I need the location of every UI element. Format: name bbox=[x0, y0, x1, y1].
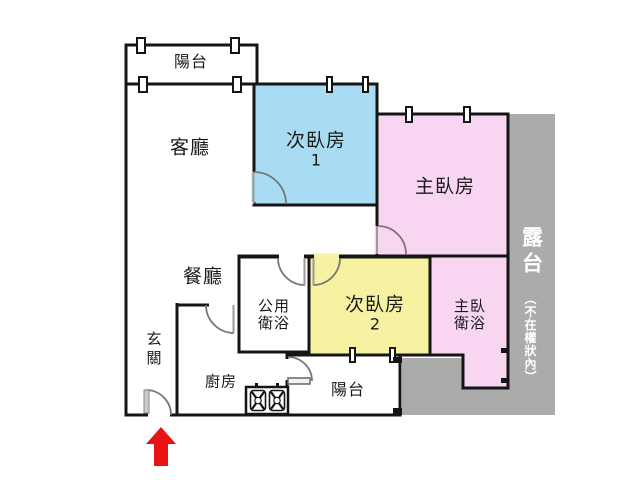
label-bedroom-2-1-number: 1 bbox=[286, 152, 346, 170]
label-bedroom-2-2-number: 2 bbox=[345, 316, 405, 334]
label-balcony-top: 陽台 bbox=[174, 53, 208, 71]
label-master-bedroom: 主臥房 bbox=[415, 176, 475, 197]
label-bedroom-2-1-name: 次臥房 bbox=[286, 130, 346, 151]
door-gap-entry bbox=[148, 412, 170, 418]
label-balcony-bottom: 陽台 bbox=[331, 381, 365, 399]
label-shared-bathroom: 公用 衛浴 bbox=[258, 298, 290, 332]
label-bedroom-2-2-name: 次臥房 bbox=[345, 294, 405, 315]
label-shared-bathroom-line1: 公用 bbox=[258, 298, 290, 315]
stove-icon bbox=[246, 383, 288, 414]
door-gap-bedroom-2-2 bbox=[314, 254, 339, 259]
label-master-bathroom-line2: 衛浴 bbox=[454, 315, 486, 332]
label-entryway: 玄關 bbox=[146, 331, 161, 369]
label-master-bathroom: 主臥 衛浴 bbox=[454, 298, 486, 332]
label-master-bathroom-line1: 主臥 bbox=[454, 298, 486, 315]
floor-plan-drawing bbox=[0, 0, 640, 480]
label-terrace-note: （不在權狀內） bbox=[524, 293, 536, 384]
label-living-room: 客廳 bbox=[170, 137, 210, 158]
label-bedroom-2-1: 次臥房 1 bbox=[286, 130, 346, 169]
floor-plan: 陽台 客廳 次臥房 1 主臥房 餐廳 公用 衛浴 次臥房 2 主臥 衛浴 玄關 … bbox=[0, 0, 640, 480]
label-shared-bathroom-line2: 衛浴 bbox=[258, 315, 290, 332]
label-dining-room: 餐廳 bbox=[183, 266, 223, 287]
door-gap-shared-bath bbox=[279, 254, 304, 259]
label-kitchen: 廚房 bbox=[205, 374, 237, 391]
label-terrace: 露台 bbox=[521, 226, 542, 278]
entrance-arrow-icon bbox=[146, 427, 176, 466]
label-bedroom-2-2: 次臥房 2 bbox=[345, 294, 405, 333]
door-gap-balcony-kitchen bbox=[285, 359, 290, 380]
